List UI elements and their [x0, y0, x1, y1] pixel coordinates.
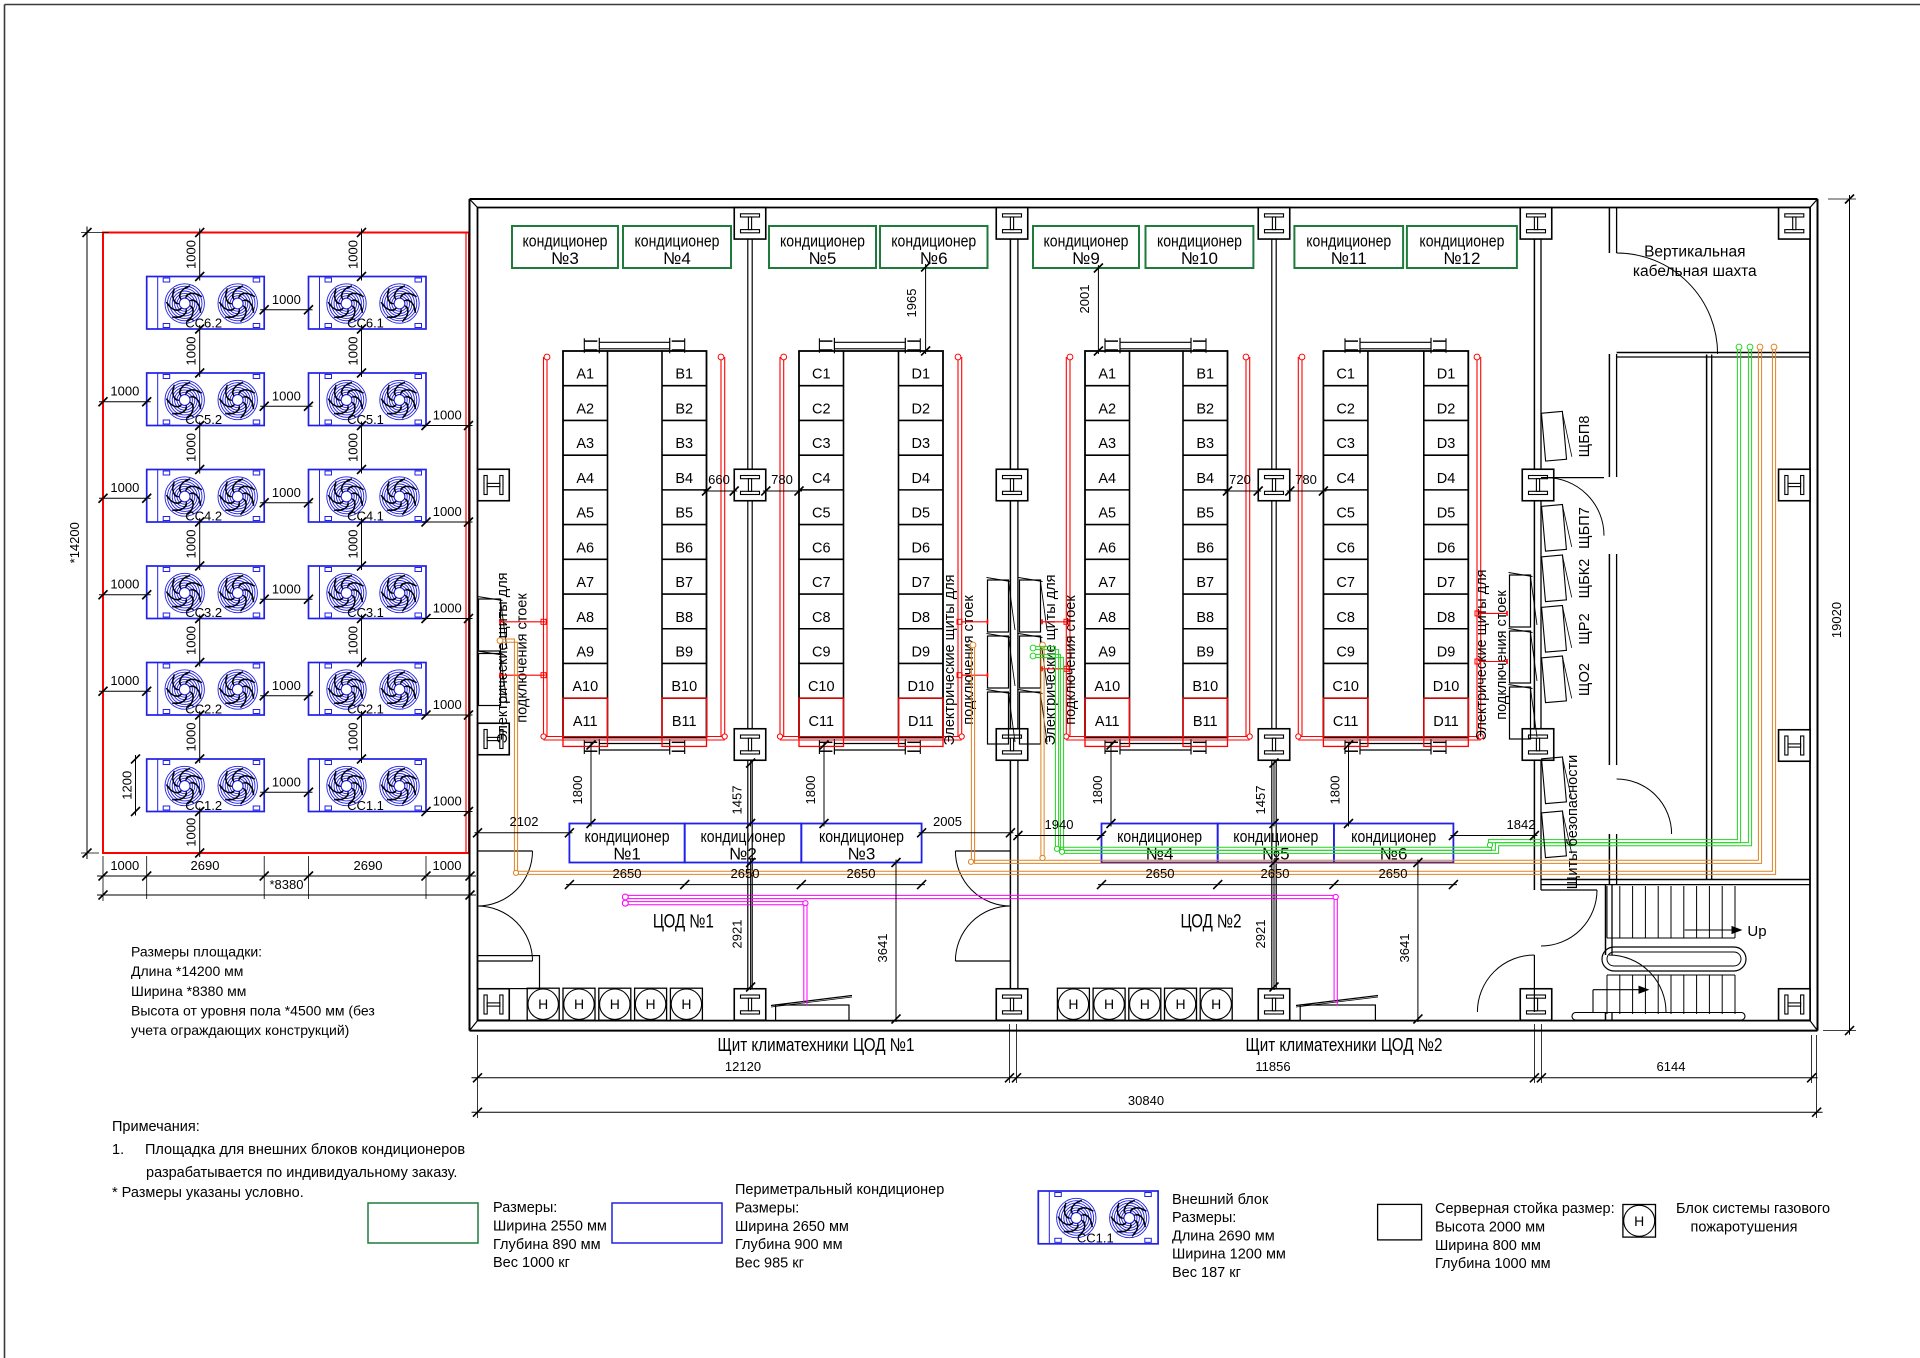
svg-text:A2: A2 — [576, 401, 594, 417]
svg-text:*14200: *14200 — [67, 522, 82, 563]
svg-text:1940: 1940 — [1045, 817, 1074, 832]
svg-text:Вертикальная: Вертикальная — [1644, 244, 1745, 261]
svg-text:Вес 985 кг: Вес 985 кг — [735, 1256, 804, 1272]
svg-text:кондиционер: кондиционер — [780, 232, 865, 251]
svg-text:ЩБП7: ЩБП7 — [1577, 507, 1593, 549]
svg-text:подключения стоек: подключения стоек — [1063, 595, 1079, 725]
svg-text:1000: 1000 — [433, 794, 462, 809]
svg-text:CC1.1: CC1.1 — [1077, 1230, 1114, 1245]
svg-text:C7: C7 — [1336, 575, 1355, 591]
svg-text:D6: D6 — [911, 540, 930, 556]
svg-text:B3: B3 — [675, 436, 693, 452]
svg-text:A10: A10 — [572, 679, 598, 695]
svg-text:A5: A5 — [576, 506, 594, 522]
svg-text:CC6.2: CC6.2 — [185, 316, 222, 331]
svg-text:B8: B8 — [1196, 610, 1214, 626]
svg-text:№9: №9 — [1072, 249, 1100, 268]
svg-text:1457: 1457 — [730, 786, 745, 815]
svg-text:Размеры площадки:: Размеры площадки: — [131, 944, 262, 960]
svg-text:2650: 2650 — [1379, 866, 1408, 881]
svg-text:A7: A7 — [1098, 575, 1116, 591]
svg-text:1000: 1000 — [184, 337, 199, 366]
svg-text:1000: 1000 — [272, 774, 301, 789]
svg-text:1800: 1800 — [803, 776, 818, 805]
svg-text:1842: 1842 — [1507, 817, 1536, 832]
svg-text:кондиционер: кондиционер — [891, 232, 976, 251]
svg-text:Электрические щиты для: Электрические щиты для — [1043, 574, 1059, 745]
svg-text:780: 780 — [771, 472, 793, 487]
svg-text:A7: A7 — [576, 575, 594, 591]
svg-text:C3: C3 — [1336, 436, 1355, 452]
svg-text:1000: 1000 — [433, 858, 462, 873]
svg-text:B7: B7 — [1196, 575, 1214, 591]
svg-text:Высота 2000 мм: Высота 2000 мм — [1435, 1219, 1545, 1235]
svg-text:1000: 1000 — [110, 858, 139, 873]
svg-text:Вес 1000 кг: Вес 1000 кг — [493, 1255, 570, 1271]
svg-text:Глубина 900 мм: Глубина 900 мм — [735, 1237, 843, 1253]
svg-text:B3: B3 — [1196, 436, 1214, 452]
svg-text:№6: №6 — [920, 249, 948, 268]
svg-text:D3: D3 — [1437, 436, 1456, 452]
svg-text:1000: 1000 — [272, 678, 301, 693]
svg-text:CC5.1: CC5.1 — [347, 412, 384, 427]
svg-text:1000: 1000 — [184, 723, 199, 752]
svg-text:ЩБК2: ЩБК2 — [1577, 559, 1593, 599]
svg-text:2690: 2690 — [191, 858, 220, 873]
svg-text:3641: 3641 — [875, 934, 890, 963]
svg-text:Блок системы газового: Блок системы газового — [1676, 1201, 1830, 1217]
svg-text:C8: C8 — [812, 610, 831, 626]
svg-text:C9: C9 — [812, 644, 831, 660]
svg-text:Ширина *8380 мм: Ширина *8380 мм — [131, 983, 246, 999]
svg-text:D10: D10 — [907, 679, 934, 695]
svg-text:1000: 1000 — [433, 601, 462, 616]
svg-text:780: 780 — [1295, 472, 1317, 487]
svg-text:ЩР2: ЩР2 — [1577, 613, 1593, 644]
svg-text:C6: C6 — [812, 540, 831, 556]
svg-text:D6: D6 — [1437, 540, 1456, 556]
svg-text:B8: B8 — [675, 610, 693, 626]
svg-text:C6: C6 — [1336, 540, 1355, 556]
svg-text:3641: 3641 — [1397, 934, 1412, 963]
svg-text:Внешний блок: Внешний блок — [1172, 1192, 1269, 1208]
svg-text:C7: C7 — [812, 575, 831, 591]
svg-text:кондиционер: кондиционер — [819, 827, 904, 846]
svg-text:CC3.2: CC3.2 — [185, 605, 222, 620]
svg-text:B1: B1 — [1196, 367, 1214, 383]
svg-text:кондиционер: кондиционер — [1117, 827, 1202, 846]
svg-text:B9: B9 — [1196, 644, 1214, 660]
svg-text:H: H — [538, 996, 548, 1012]
svg-text:D1: D1 — [1437, 367, 1456, 383]
svg-text:C1: C1 — [812, 367, 831, 383]
svg-text:A8: A8 — [1098, 610, 1116, 626]
svg-text:Электрические щиты для: Электрические щиты для — [1474, 569, 1490, 740]
svg-text:№4: №4 — [663, 249, 691, 268]
svg-text:кондиционер: кондиционер — [1419, 232, 1504, 251]
svg-text:12120: 12120 — [725, 1059, 761, 1074]
svg-text:A3: A3 — [1098, 436, 1116, 452]
svg-text:D7: D7 — [911, 575, 930, 591]
svg-text:Размеры:: Размеры: — [1172, 1210, 1236, 1226]
svg-text:D3: D3 — [911, 436, 930, 452]
svg-text:B9: B9 — [675, 644, 693, 660]
svg-text:D8: D8 — [1437, 610, 1456, 626]
svg-text:6144: 6144 — [1657, 1059, 1686, 1074]
svg-text:1800: 1800 — [1328, 776, 1343, 805]
svg-text:19020: 19020 — [1829, 602, 1844, 638]
svg-text:ЦОД №1: ЦОД №1 — [653, 911, 714, 932]
svg-text:1000: 1000 — [272, 485, 301, 500]
svg-text:H: H — [1175, 996, 1185, 1012]
svg-text:1000: 1000 — [433, 408, 462, 423]
svg-text:Размеры:: Размеры: — [735, 1200, 799, 1216]
svg-text:A4: A4 — [1098, 471, 1116, 487]
svg-text:Щиты безопасности: Щиты безопасности — [1565, 755, 1581, 889]
svg-text:B5: B5 — [1196, 506, 1214, 522]
svg-text:A11: A11 — [573, 714, 598, 730]
svg-text:11856: 11856 — [1255, 1059, 1290, 1074]
svg-text:кондиционер: кондиционер — [1157, 232, 1242, 251]
svg-text:кондиционер: кондиционер — [1044, 232, 1129, 251]
svg-text:№12: №12 — [1443, 249, 1480, 268]
svg-text:2650: 2650 — [1146, 866, 1175, 881]
svg-text:№5: №5 — [809, 249, 837, 268]
svg-text:C5: C5 — [812, 506, 831, 522]
svg-text:кондиционер: кондиционер — [585, 827, 670, 846]
svg-text:B1: B1 — [675, 367, 693, 383]
svg-text:B7: B7 — [675, 575, 693, 591]
svg-text:ЩБП8: ЩБП8 — [1577, 416, 1593, 458]
svg-text:C5: C5 — [1336, 506, 1355, 522]
svg-text:Размеры:: Размеры: — [493, 1200, 557, 1216]
svg-text:CC2.2: CC2.2 — [185, 702, 222, 717]
svg-text:D9: D9 — [1437, 644, 1456, 660]
svg-text:№3: №3 — [848, 845, 876, 864]
svg-text:Серверная стойка размер:: Серверная стойка размер: — [1435, 1201, 1615, 1217]
svg-text:B4: B4 — [1196, 471, 1214, 487]
svg-text:D11: D11 — [908, 714, 934, 730]
svg-text:1000: 1000 — [346, 240, 361, 269]
svg-text:CC5.2: CC5.2 — [185, 412, 222, 427]
svg-text:A1: A1 — [576, 367, 594, 383]
svg-text:A9: A9 — [1098, 644, 1116, 660]
svg-text:A3: A3 — [576, 436, 594, 452]
svg-text:A5: A5 — [1098, 506, 1116, 522]
svg-text:1000: 1000 — [184, 240, 199, 269]
svg-text:D4: D4 — [911, 471, 930, 487]
svg-text:H: H — [646, 996, 656, 1012]
svg-text:Глубина 1000 мм: Глубина 1000 мм — [1435, 1256, 1551, 1272]
svg-text:1800: 1800 — [570, 776, 585, 805]
svg-text:Щит климатехники ЦОД №1: Щит климатехники ЦОД №1 — [718, 1034, 915, 1055]
svg-text:1000: 1000 — [346, 530, 361, 559]
svg-text:учета ограждающих конструкций): учета ограждающих конструкций) — [131, 1022, 349, 1038]
svg-text:2650: 2650 — [1261, 866, 1290, 881]
svg-text:ЦОД №2: ЦОД №2 — [1181, 911, 1242, 932]
svg-text:подключения стоек: подключения стоек — [1494, 590, 1510, 720]
svg-text:Длина *14200 мм: Длина *14200 мм — [131, 963, 243, 979]
svg-text:D9: D9 — [911, 644, 930, 660]
svg-text:C3: C3 — [812, 436, 831, 452]
svg-text:Вес 187 кг: Вес 187 кг — [1172, 1265, 1241, 1281]
svg-text:кондиционер: кондиционер — [1351, 827, 1436, 846]
svg-text:2102: 2102 — [510, 814, 539, 829]
svg-text:D1: D1 — [911, 367, 930, 383]
svg-text:2650: 2650 — [847, 866, 876, 881]
svg-text:D11: D11 — [1433, 714, 1459, 730]
svg-text:2650: 2650 — [613, 866, 642, 881]
svg-text:D2: D2 — [911, 401, 930, 417]
svg-text:C10: C10 — [808, 679, 835, 695]
svg-text:A8: A8 — [576, 610, 594, 626]
svg-text:H: H — [1634, 1213, 1644, 1229]
svg-text:C2: C2 — [812, 401, 831, 417]
svg-text:A2: A2 — [1098, 401, 1116, 417]
svg-text:1000: 1000 — [184, 626, 199, 655]
svg-text:1000: 1000 — [184, 818, 199, 847]
svg-text:A6: A6 — [576, 540, 594, 556]
svg-text:кабельная шахта: кабельная шахта — [1633, 263, 1757, 280]
svg-text:B11: B11 — [672, 714, 697, 730]
svg-text:A9: A9 — [576, 644, 594, 660]
svg-text:1.: 1. — [112, 1142, 124, 1158]
svg-text:1000: 1000 — [110, 673, 139, 688]
svg-text:CC1.2: CC1.2 — [185, 798, 222, 813]
svg-text:1000: 1000 — [272, 388, 301, 403]
svg-text:Глубина 890 мм: Глубина 890 мм — [493, 1237, 601, 1253]
svg-text:A4: A4 — [576, 471, 594, 487]
svg-text:Ширина 2650 мм: Ширина 2650 мм — [735, 1219, 849, 1235]
svg-text:1000: 1000 — [184, 433, 199, 462]
svg-text:H: H — [1104, 996, 1114, 1012]
svg-text:1000: 1000 — [110, 383, 139, 398]
svg-text:1000: 1000 — [346, 626, 361, 655]
svg-text:разрабатывается по индивидуаль: разрабатывается по индивидуальному заказ… — [146, 1165, 457, 1181]
svg-text:№1: №1 — [613, 845, 641, 864]
svg-text:A11: A11 — [1095, 714, 1120, 730]
svg-text:кондиционер: кондиционер — [523, 232, 608, 251]
svg-text:кондиционер: кондиционер — [701, 827, 786, 846]
svg-text:C8: C8 — [1336, 610, 1355, 626]
svg-text:Примечания:: Примечания: — [112, 1119, 200, 1135]
svg-text:H: H — [1140, 996, 1150, 1012]
svg-text:B10: B10 — [671, 679, 697, 695]
svg-text:1000: 1000 — [272, 292, 301, 307]
svg-text:D5: D5 — [1437, 506, 1456, 522]
svg-text:CC3.1: CC3.1 — [347, 605, 384, 620]
svg-text:ЩО2: ЩО2 — [1577, 663, 1593, 696]
svg-text:2001: 2001 — [1077, 285, 1092, 314]
svg-text:D8: D8 — [911, 610, 930, 626]
svg-text:1965: 1965 — [904, 289, 919, 318]
svg-text:1000: 1000 — [346, 723, 361, 752]
svg-text:1000: 1000 — [433, 697, 462, 712]
svg-text:CC1.1: CC1.1 — [347, 798, 384, 813]
svg-text:B6: B6 — [1196, 540, 1214, 556]
svg-text:C4: C4 — [812, 471, 831, 487]
svg-text:Щит климатехники ЦОД №2: Щит климатехники ЦОД №2 — [1246, 1034, 1443, 1055]
svg-text:720: 720 — [1229, 472, 1251, 487]
svg-text:№3: №3 — [551, 249, 579, 268]
svg-text:H: H — [1068, 996, 1078, 1012]
svg-text:B6: B6 — [675, 540, 693, 556]
svg-text:* Размеры указаны условно.: * Размеры указаны условно. — [112, 1185, 304, 1201]
svg-text:CC6.1: CC6.1 — [347, 316, 384, 331]
svg-text:B11: B11 — [1193, 714, 1218, 730]
svg-text:1000: 1000 — [346, 433, 361, 462]
svg-text:CC4.1: CC4.1 — [347, 509, 384, 524]
svg-text:H: H — [574, 996, 584, 1012]
svg-text:Периметральный кондиционер: Периметральный кондиционер — [735, 1182, 944, 1198]
svg-text:C1: C1 — [1336, 367, 1355, 383]
svg-text:C11: C11 — [1333, 714, 1359, 730]
svg-text:D2: D2 — [1437, 401, 1456, 417]
svg-text:кондиционер: кондиционер — [1306, 232, 1391, 251]
svg-text:пожаротушения: пожаротушения — [1690, 1219, 1797, 1235]
svg-text:Ширина 800 мм: Ширина 800 мм — [1435, 1238, 1541, 1254]
svg-text:D7: D7 — [1437, 575, 1456, 591]
svg-text:Электрические щиты для: Электрические щиты для — [495, 572, 511, 743]
svg-text:30840: 30840 — [1128, 1093, 1164, 1108]
svg-text:C11: C11 — [808, 714, 834, 730]
svg-text:Электрические щиты для: Электрические щиты для — [942, 574, 958, 745]
svg-text:1000: 1000 — [272, 581, 301, 596]
svg-text:№11: №11 — [1331, 249, 1367, 268]
svg-text:D5: D5 — [911, 506, 930, 522]
svg-text:1000: 1000 — [110, 576, 139, 591]
svg-text:D10: D10 — [1433, 679, 1460, 695]
svg-text:кондиционер: кондиционер — [1233, 827, 1318, 846]
svg-text:A1: A1 — [1098, 367, 1116, 383]
svg-text:H: H — [681, 996, 691, 1012]
svg-text:C10: C10 — [1332, 679, 1359, 695]
svg-text:1457: 1457 — [1253, 786, 1268, 815]
svg-text:2921: 2921 — [1253, 920, 1268, 949]
svg-text:B2: B2 — [675, 401, 693, 417]
svg-text:H: H — [610, 996, 620, 1012]
svg-text:C9: C9 — [1336, 644, 1355, 660]
svg-text:B5: B5 — [675, 506, 693, 522]
svg-text:Ширина 2550 мм: Ширина 2550 мм — [493, 1218, 607, 1234]
svg-text:660: 660 — [708, 472, 730, 487]
svg-text:1000: 1000 — [346, 337, 361, 366]
svg-text:Высота от уровня пола *4500 мм: Высота от уровня пола *4500 мм (без — [131, 1002, 375, 1018]
svg-text:CC2.1: CC2.1 — [347, 702, 384, 717]
svg-text:Up: Up — [1747, 923, 1766, 940]
svg-text:Площадка для внешних блоков ко: Площадка для внешних блоков кондиционеро… — [145, 1142, 465, 1158]
svg-text:Длина 2690 мм: Длина 2690 мм — [1172, 1228, 1275, 1244]
svg-text:B10: B10 — [1192, 679, 1218, 695]
svg-text:H: H — [1211, 996, 1221, 1012]
svg-text:2005: 2005 — [933, 814, 962, 829]
svg-text:1000: 1000 — [433, 504, 462, 519]
svg-text:C2: C2 — [1336, 401, 1355, 417]
svg-text:B4: B4 — [675, 471, 693, 487]
svg-text:кондиционер: кондиционер — [635, 232, 720, 251]
svg-text:1800: 1800 — [1090, 776, 1105, 805]
svg-text:2921: 2921 — [730, 920, 745, 949]
svg-text:№10: №10 — [1181, 249, 1218, 268]
svg-text:B2: B2 — [1196, 401, 1214, 417]
svg-text:CC4.2: CC4.2 — [185, 509, 222, 524]
svg-text:*8380: *8380 — [270, 877, 304, 892]
svg-text:A6: A6 — [1098, 540, 1116, 556]
svg-text:A10: A10 — [1094, 679, 1120, 695]
svg-text:2690: 2690 — [354, 858, 383, 873]
svg-text:Ширина 1200 мм: Ширина 1200 мм — [1172, 1247, 1286, 1263]
svg-text:1000: 1000 — [110, 480, 139, 495]
svg-text:1000: 1000 — [184, 530, 199, 559]
svg-text:C4: C4 — [1336, 471, 1355, 487]
svg-text:D4: D4 — [1437, 471, 1456, 487]
svg-text:2650: 2650 — [731, 866, 760, 881]
svg-text:1200: 1200 — [120, 771, 135, 800]
